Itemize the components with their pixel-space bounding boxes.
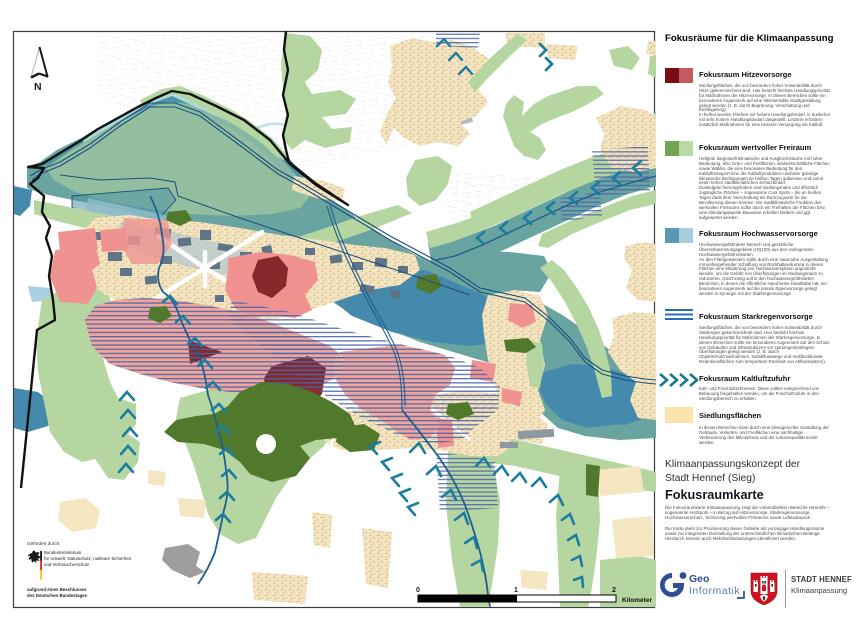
svg-text:Bundesministerium: Bundesministerium (44, 550, 82, 555)
svg-text:Kilometer: Kilometer (622, 597, 652, 604)
svg-text:N: N (34, 81, 42, 93)
svg-text:für Umwelt, Naturschutz, nukle: für Umwelt, Naturschutz, nukleare Sicher… (44, 556, 132, 561)
svg-text:des Deutschen Bundestages: des Deutschen Bundestages (27, 593, 88, 598)
svg-text:aufgrund eines Beschlusses: aufgrund eines Beschlusses (27, 587, 87, 592)
svg-text:und Verbraucherschutz: und Verbraucherschutz (44, 562, 89, 567)
svg-text:Informatik: Informatik (689, 585, 740, 597)
svg-text:2: 2 (612, 587, 616, 594)
svg-text:0: 0 (416, 587, 420, 594)
svg-text:Geo: Geo (689, 573, 709, 585)
svg-text:1: 1 (514, 587, 518, 594)
svg-text:Gefördert durch:: Gefördert durch: (27, 541, 60, 546)
